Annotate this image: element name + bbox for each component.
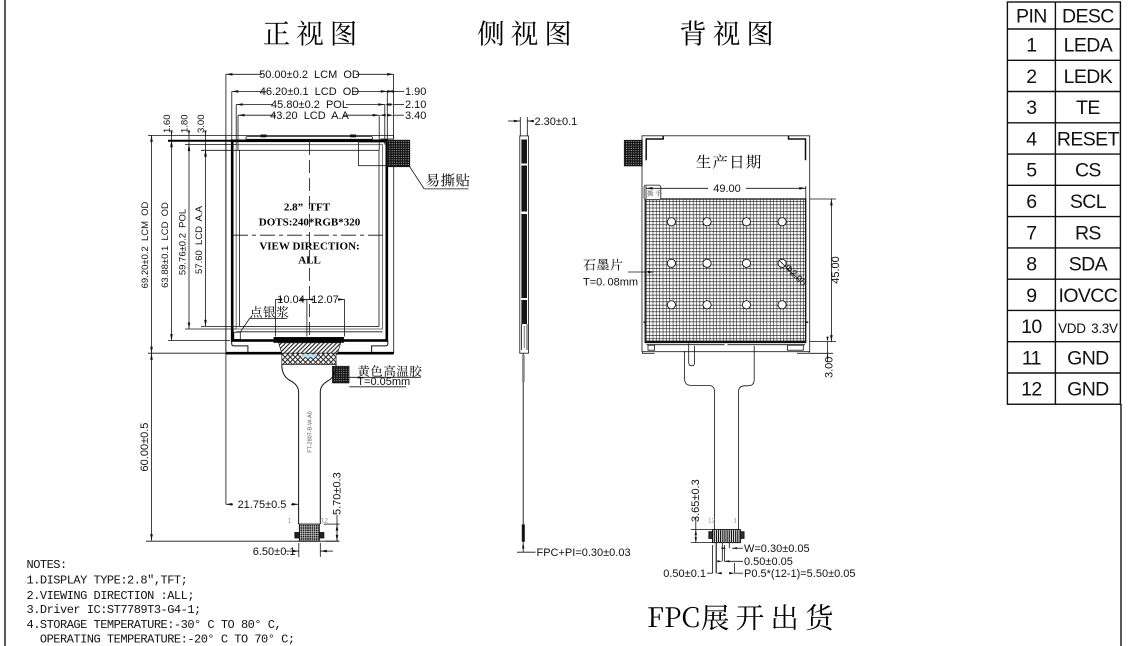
svg-text:2.VIEWING DIRECTION :ALL;: 2.VIEWING DIRECTION :ALL; [27, 589, 195, 603]
svg-text:43.20 LCD A.A: 43.20 LCD A.A [270, 110, 349, 122]
svg-text:3.65±0.3: 3.65±0.3 [690, 479, 702, 522]
svg-text:VIEW DIRECTION:: VIEW DIRECTION: [259, 241, 359, 253]
svg-text:P0.5*(12-1)=5.50±0.05: P0.5*(12-1)=5.50±0.05 [744, 568, 856, 580]
svg-text:DOTS:240*RGB*320: DOTS:240*RGB*320 [259, 217, 361, 229]
svg-text:4: 4 [1026, 128, 1037, 150]
svg-text:RESET: RESET [1057, 128, 1120, 150]
svg-text:50.00±0.2 LCM OD: 50.00±0.2 LCM OD [259, 69, 360, 81]
svg-text:11: 11 [1022, 347, 1041, 369]
svg-text:NOTES:: NOTES: [27, 558, 67, 572]
svg-text:PIN: PIN [1016, 6, 1047, 28]
svg-text:12: 12 [1021, 379, 1042, 401]
svg-text:1.DISPLAY TYPE:2.8″,TFT;: 1.DISPLAY TYPE:2.8″,TFT; [27, 574, 188, 588]
svg-text:1.60: 1.60 [162, 115, 173, 134]
svg-text:3.40: 3.40 [405, 110, 426, 122]
svg-text:ALL: ALL [298, 255, 321, 267]
svg-text:5.70±0.3: 5.70±0.3 [331, 472, 343, 515]
svg-text:6: 6 [1026, 191, 1036, 213]
svg-text:57.60 LCD A.A: 57.60 LCD A.A [194, 205, 205, 274]
svg-text:10: 10 [1021, 316, 1042, 338]
svg-text:6.50±0.1: 6.50±0.1 [253, 546, 296, 558]
svg-text:3: 3 [1026, 97, 1036, 119]
svg-text:SCL: SCL [1070, 191, 1107, 213]
svg-text:0.50±0.1: 0.50±0.1 [663, 568, 706, 580]
svg-text:21.75±0.5: 21.75±0.5 [238, 499, 287, 511]
svg-text:8: 8 [1026, 254, 1036, 276]
svg-text:GND: GND [1067, 379, 1109, 401]
svg-text:2.30±0.1: 2.30±0.1 [535, 116, 578, 128]
svg-text:60.00±0.5: 60.00±0.5 [139, 423, 151, 472]
svg-text:FT-2807-B-W-A0: FT-2807-B-W-A0 [308, 411, 314, 452]
svg-text:DESC: DESC [1062, 6, 1114, 28]
svg-text:LEDK: LEDK [1064, 66, 1113, 88]
svg-text:CS: CS [1075, 160, 1101, 182]
svg-text:3.00: 3.00 [824, 357, 836, 378]
svg-text:1.80: 1.80 [179, 115, 190, 134]
svg-text:3.Driver IC:ST7789T3-G4-1;: 3.Driver IC:ST7789T3-G4-1; [27, 603, 201, 617]
svg-text:3.00: 3.00 [196, 115, 207, 134]
svg-text:45.00: 45.00 [830, 256, 842, 284]
svg-text:RS: RS [1075, 222, 1101, 244]
svg-text:59.76±0.2 POL: 59.76±0.2 POL [177, 209, 188, 275]
svg-text:LEDA: LEDA [1064, 35, 1113, 57]
svg-text:1: 1 [1026, 35, 1036, 57]
svg-text:69.20±0.2 LCM OD: 69.20±0.2 LCM OD [140, 201, 151, 288]
svg-text:0.50±0.05: 0.50±0.05 [744, 556, 793, 568]
svg-text:GND: GND [1067, 347, 1109, 369]
svg-text:T=0. 08mm: T=0. 08mm [583, 277, 638, 289]
svg-text:12: 12 [321, 518, 329, 525]
svg-text:1: 1 [287, 518, 291, 525]
svg-text:12: 12 [708, 518, 716, 525]
svg-text:2.8” TFT: 2.8” TFT [284, 201, 331, 213]
svg-text:VDD 3.3V: VDD 3.3V [1058, 321, 1118, 336]
svg-text:12.07: 12.07 [311, 294, 339, 306]
svg-text:W=0.30±0.05: W=0.30±0.05 [744, 543, 810, 555]
svg-text:OPERATING TEMPERATURE:-20° C T: OPERATING TEMPERATURE:-20° C TO 70° C; [27, 633, 295, 646]
svg-text:5: 5 [1026, 160, 1037, 182]
svg-text:SDA: SDA [1069, 254, 1108, 276]
svg-text:4.STORAGE TEMPERATURE:-30° C T: 4.STORAGE TEMPERATURE:-30° C TO 80° C, [27, 618, 282, 632]
svg-text:IOVCC: IOVCC [1059, 285, 1118, 307]
svg-text:TE: TE [1076, 97, 1100, 119]
svg-text:9: 9 [1026, 285, 1036, 307]
svg-text:1.90: 1.90 [405, 86, 426, 98]
svg-text:49.00: 49.00 [713, 183, 741, 195]
svg-text:1: 1 [733, 518, 737, 525]
svg-text:46.20±0.1 LCD OD: 46.20±0.1 LCD OD [260, 86, 360, 98]
svg-text:7: 7 [1026, 222, 1036, 244]
svg-text:2: 2 [1026, 66, 1036, 88]
svg-text:FPC+PI=0.30±0.03: FPC+PI=0.30±0.03 [537, 547, 631, 559]
svg-text:63.88±0.1 LCD OD: 63.88±0.1 LCD OD [160, 202, 171, 288]
